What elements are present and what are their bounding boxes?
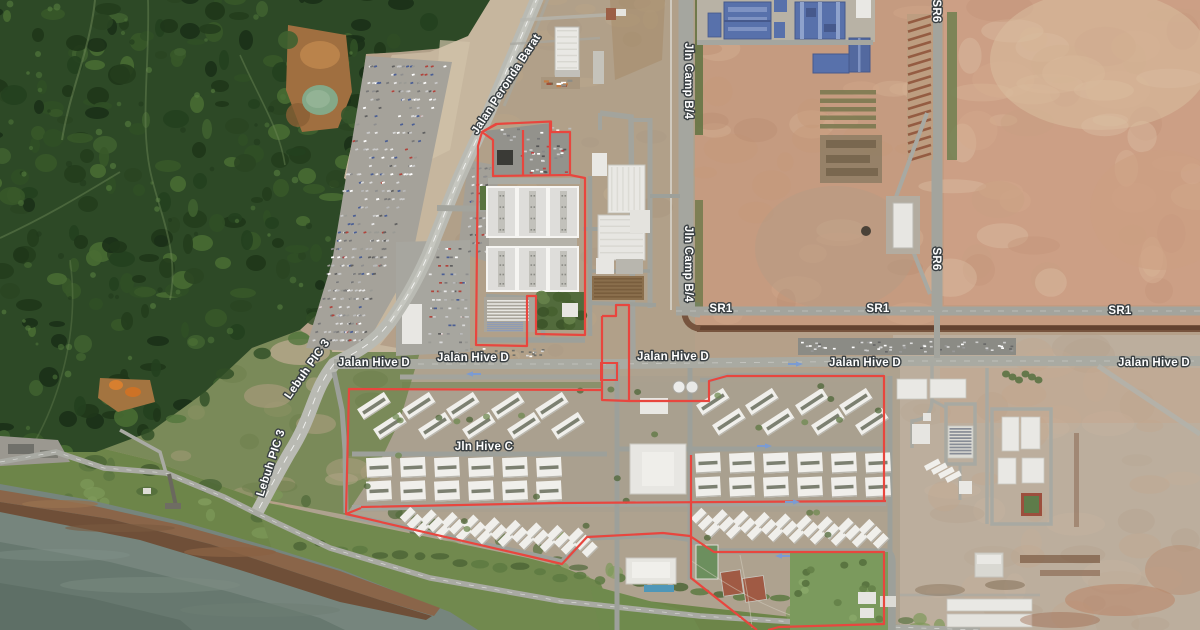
svg-text:SR1: SR1: [1108, 305, 1132, 317]
svg-text:Jln Hive C: Jln Hive C: [455, 441, 514, 453]
svg-text:Jalan Hive D: Jalan Hive D: [338, 357, 410, 369]
svg-text:SR6: SR6: [930, 247, 942, 270]
svg-text:SR1: SR1: [709, 303, 733, 315]
svg-text:Jalan Hive D: Jalan Hive D: [1118, 357, 1190, 369]
svg-text:Jalan Hive D: Jalan Hive D: [437, 352, 509, 364]
svg-text:Jalan Hive D: Jalan Hive D: [637, 351, 709, 363]
svg-text:Jln Camp B/4: Jln Camp B/4: [682, 43, 694, 120]
svg-text:SR6: SR6: [930, 0, 942, 23]
svg-text:Jalan Hive D: Jalan Hive D: [829, 357, 901, 369]
svg-text:SR1: SR1: [866, 303, 890, 315]
svg-text:Jln Camp B/4: Jln Camp B/4: [682, 226, 694, 303]
